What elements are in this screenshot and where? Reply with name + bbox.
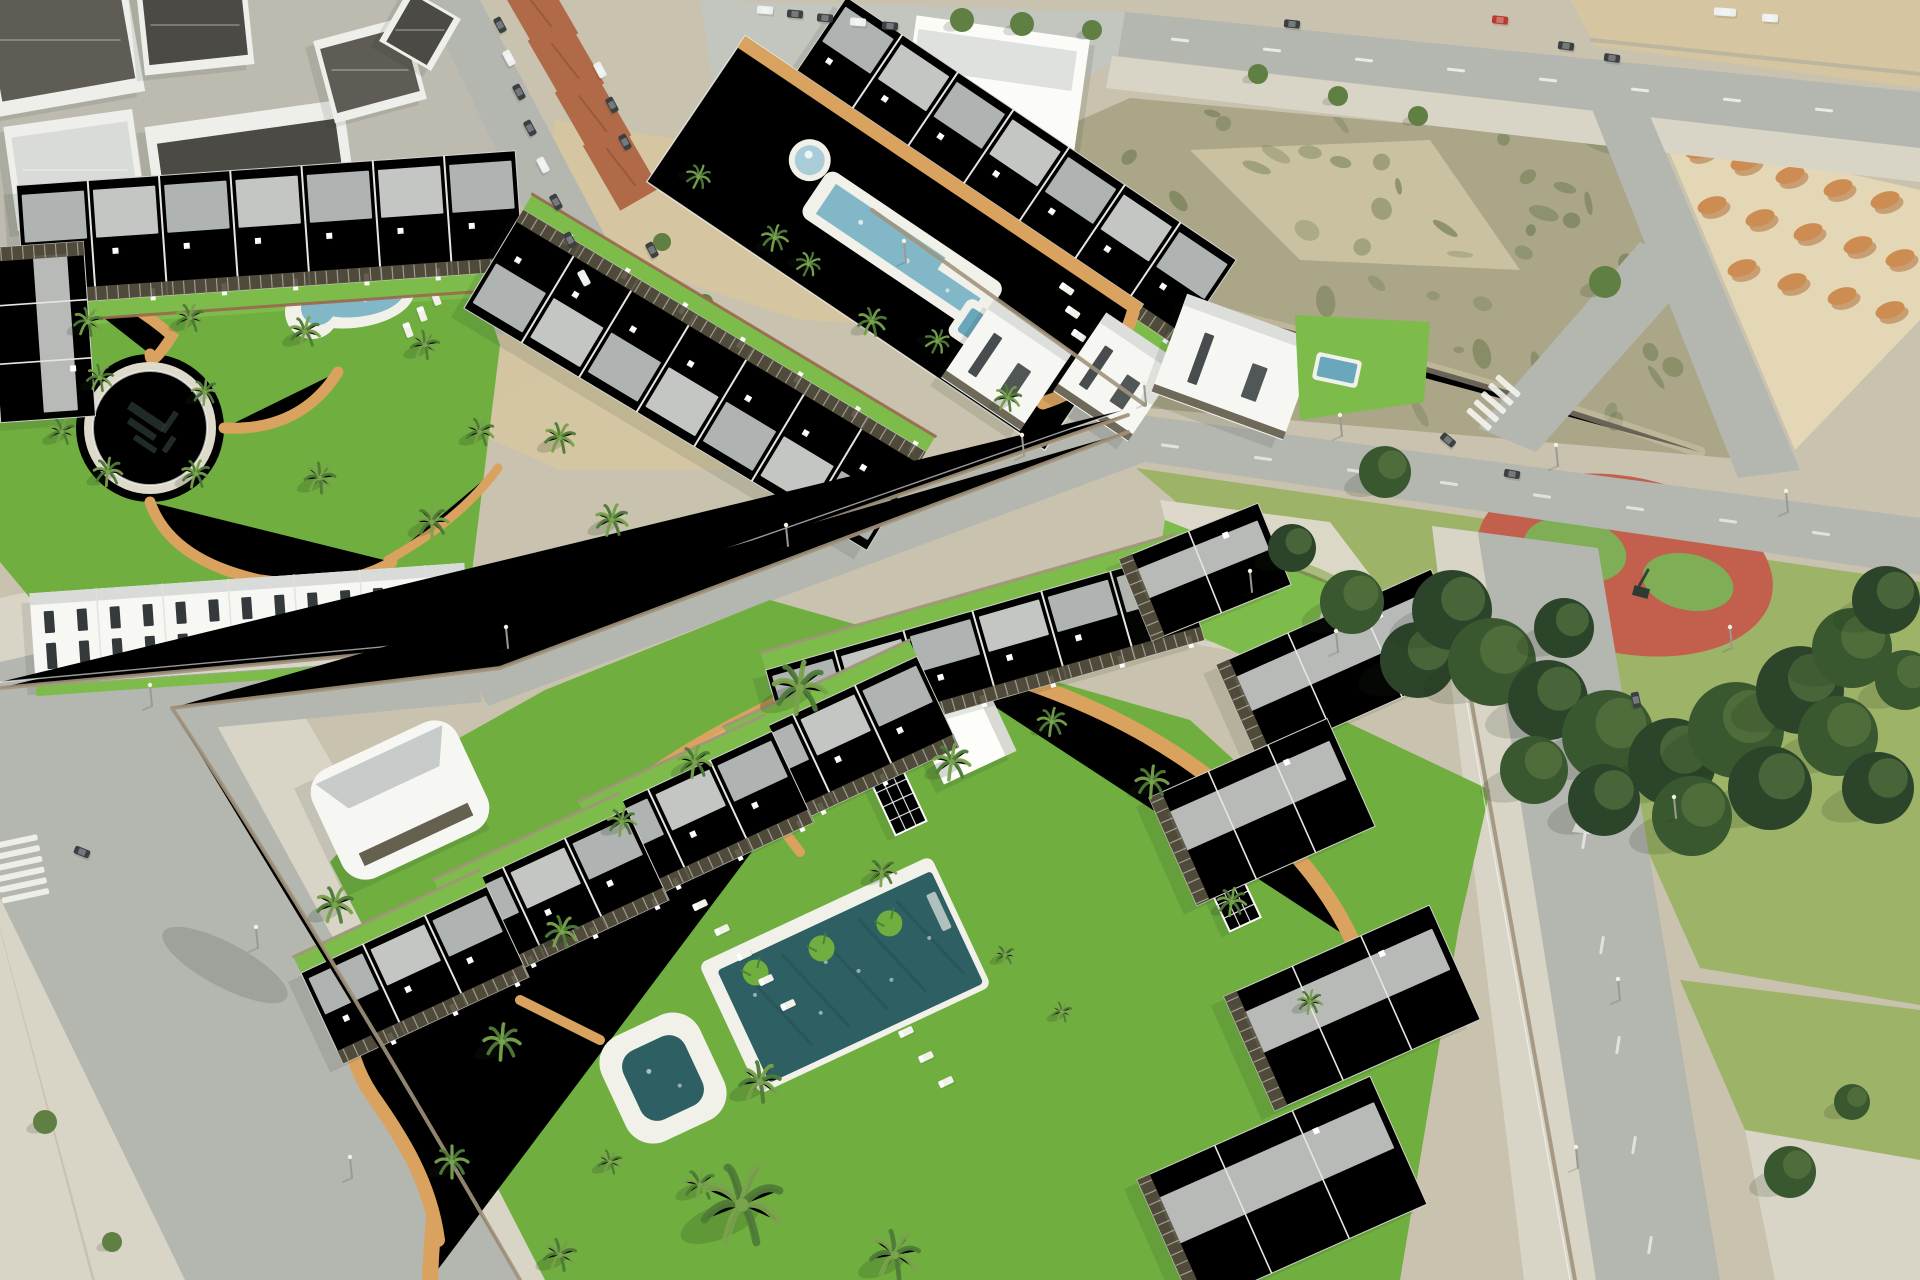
car <box>787 9 805 20</box>
car <box>817 13 835 24</box>
car <box>850 17 868 28</box>
car <box>1714 7 1738 19</box>
aerial-render-canvas <box>0 0 1920 1280</box>
car <box>757 5 775 16</box>
car <box>1491 15 1509 27</box>
car <box>882 21 900 32</box>
aerial-render <box>0 0 1920 1280</box>
car <box>1762 13 1780 24</box>
car <box>1283 19 1301 31</box>
